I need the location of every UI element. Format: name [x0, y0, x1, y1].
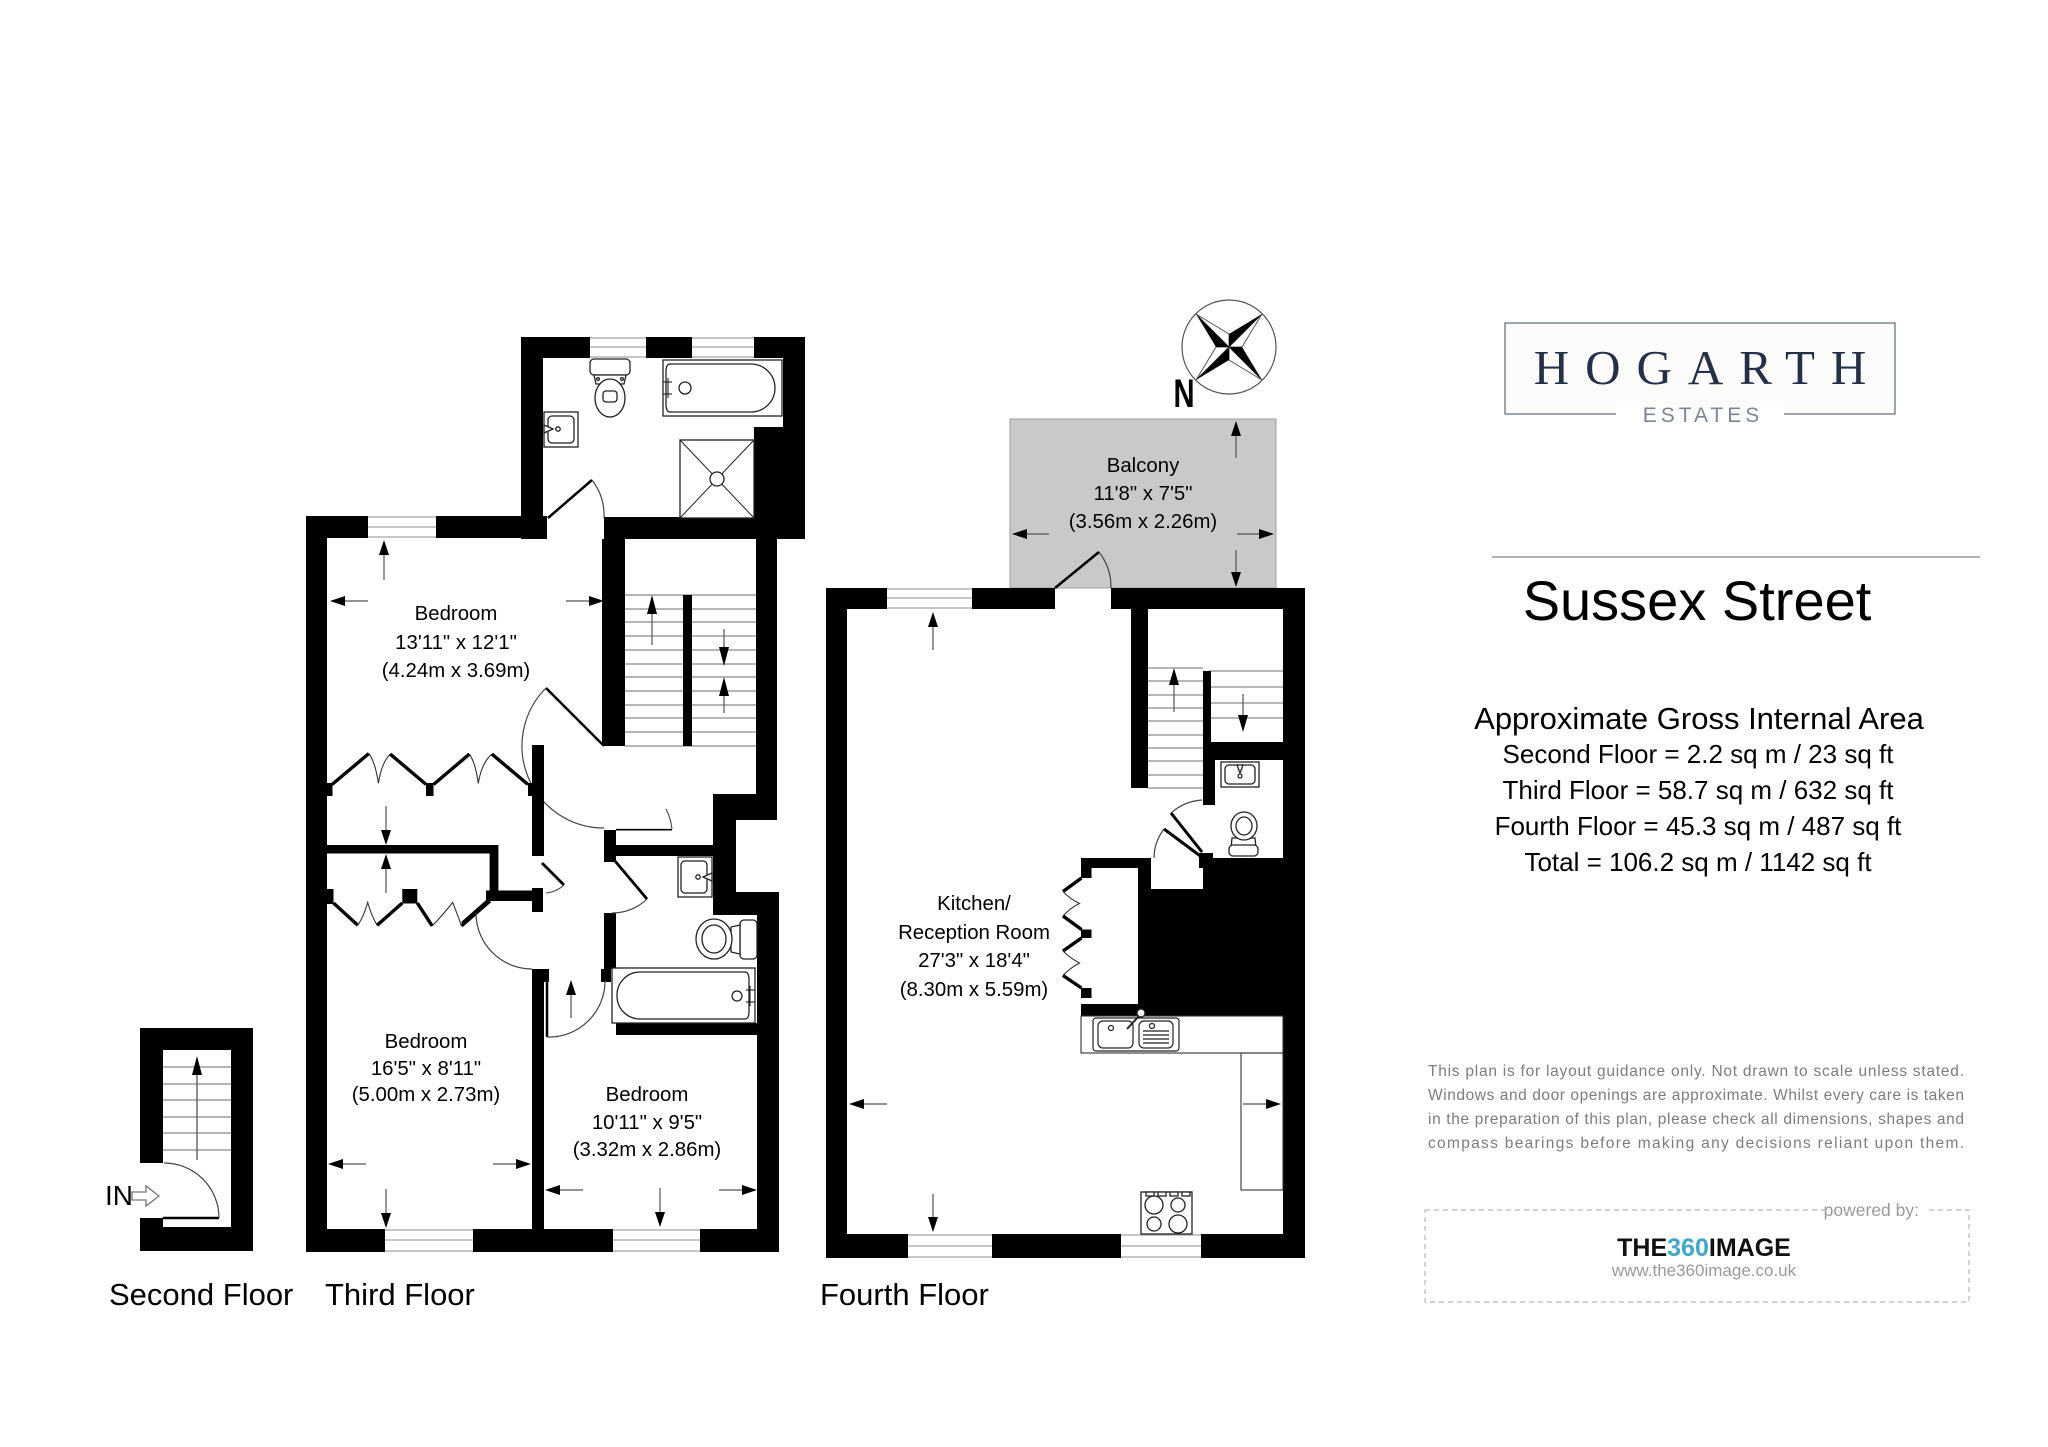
svg-text:(8.30m x 5.59m): (8.30m x 5.59m): [900, 979, 1048, 1001]
svg-text:ESTATES: ESTATES: [1643, 404, 1764, 427]
svg-text:Total = 106.2 sq m / 1142 sq f: Total = 106.2 sq m / 1142 sq ft: [1524, 847, 1872, 877]
svg-text:Reception Room: Reception Room: [898, 922, 1050, 944]
svg-text:THE360IMAGE: THE360IMAGE: [1617, 1234, 1791, 1262]
svg-text:Third Floor = 58.7 sq m / 632: Third Floor = 58.7 sq m / 632 sq ft: [1503, 775, 1895, 805]
svg-text:Second Floor: Second Floor: [109, 1277, 293, 1312]
svg-text:www.the360image.co.uk: www.the360image.co.uk: [1611, 1261, 1797, 1280]
svg-text:IN: IN: [105, 1180, 133, 1211]
svg-text:(3.32m x 2.86m): (3.32m x 2.86m): [573, 1139, 721, 1161]
svg-text:Second Floor = 2.2 sq m / 23 s: Second Floor = 2.2 sq m / 23 sq ft: [1503, 739, 1895, 769]
svg-text:powered by:: powered by:: [1824, 1200, 1919, 1220]
svg-text:10'11" x 9'5": 10'11" x 9'5": [592, 1112, 702, 1134]
svg-text:Kitchen/: Kitchen/: [937, 893, 1011, 915]
svg-text:Fourth Floor = 45.3 sq m / 487: Fourth Floor = 45.3 sq m / 487 sq ft: [1495, 811, 1903, 841]
svg-text:Bedroom: Bedroom: [606, 1084, 689, 1106]
svg-text:13'11" x 12'1": 13'11" x 12'1": [395, 632, 517, 654]
svg-text:(4.24m x 3.69m): (4.24m x 3.69m): [382, 660, 530, 682]
svg-text:Bedroom: Bedroom: [415, 603, 498, 625]
svg-text:This plan is for layout guidan: This plan is for layout guidance only. N…: [1428, 1063, 1964, 1080]
svg-text:N: N: [1173, 372, 1194, 417]
svg-text:Balcony: Balcony: [1107, 455, 1180, 477]
svg-text:Approximate Gross Internal Are: Approximate Gross Internal Area: [1474, 701, 1924, 736]
svg-text:16'5" x 8'11": 16'5" x 8'11": [371, 1058, 481, 1080]
svg-text:Sussex Street: Sussex Street: [1523, 569, 1872, 632]
svg-text:Third Floor: Third Floor: [325, 1277, 475, 1312]
svg-text:(3.56m x 2.26m): (3.56m x 2.26m): [1069, 511, 1217, 533]
svg-text:HOGARTH: HOGARTH: [1534, 340, 1883, 395]
svg-text:27'3" x 18'4": 27'3" x 18'4": [918, 950, 1030, 972]
svg-text:Bedroom: Bedroom: [385, 1031, 468, 1053]
svg-text:Windows and door openings are: Windows and door openings are approximat…: [1428, 1087, 1964, 1104]
svg-text:in the preparation of this pla: in the preparation of this plan, please …: [1428, 1111, 1964, 1128]
svg-text:11'8" x 7'5": 11'8" x 7'5": [1094, 483, 1193, 505]
svg-text:Fourth Floor: Fourth Floor: [820, 1277, 989, 1312]
svg-text:(5.00m x 2.73m): (5.00m x 2.73m): [352, 1084, 500, 1106]
